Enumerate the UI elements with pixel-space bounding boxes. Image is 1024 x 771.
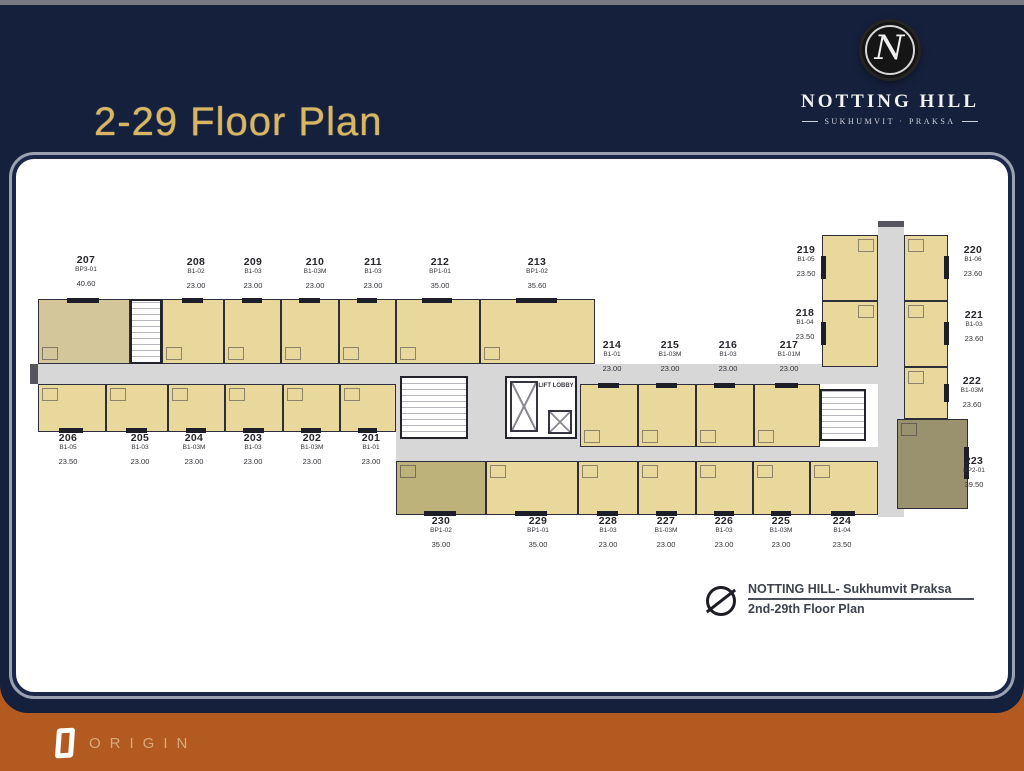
unit-type: B1-03M	[638, 351, 702, 359]
unit-label-215: 215B1-03M23.00	[638, 340, 702, 373]
unit-room-203	[225, 384, 283, 432]
unit-number: 220	[941, 245, 1005, 256]
unit-type: B1-03M	[634, 527, 698, 535]
unit-type: BP2-01	[942, 467, 1006, 475]
unit-label-226: 226B1-0323.00	[692, 516, 756, 549]
unit-number: 227	[634, 516, 698, 527]
unit-area: 40.60	[54, 279, 118, 288]
unit-area: 23.50	[774, 269, 838, 278]
compass-needle	[706, 589, 736, 614]
unit-area: 35.00	[506, 540, 570, 549]
stair-core-left	[130, 299, 162, 364]
tagline-text: SUKHUMVIT · PRAKSA	[824, 117, 955, 126]
unit-number: 224	[810, 516, 874, 527]
corridor-mid	[396, 447, 878, 461]
unit-number: 221	[942, 310, 1006, 321]
corridor-end-cap	[30, 364, 38, 384]
unit-room-216	[696, 384, 754, 447]
unit-number: 217	[757, 340, 821, 351]
unit-number: 214	[580, 340, 644, 351]
unit-number: 212	[408, 257, 472, 268]
unit-area: 23.60	[941, 269, 1005, 278]
unit-label-220: 220B1-0623.60	[941, 245, 1005, 278]
lift-shaft	[510, 381, 538, 432]
tagline-dash-left	[802, 121, 818, 122]
unit-room-201	[340, 384, 396, 432]
unit-label-202: 202B1-03M23.00	[280, 433, 344, 466]
unit-number: 226	[692, 516, 756, 527]
unit-room-206	[38, 384, 106, 432]
unit-label-221: 221B1-0323.60	[942, 310, 1006, 343]
plan-annotation: NOTTING HILL- Sukhumvit Praksa 2nd-29th …	[748, 582, 974, 616]
unit-room-229	[486, 461, 578, 515]
unit-room-227	[638, 461, 696, 515]
unit-label-217: 217B1-01M23.00	[757, 340, 821, 373]
unit-number: 223	[942, 456, 1006, 467]
floor-plan-panel: NOTTING HILL- Sukhumvit Praksa 2nd-29th …	[12, 155, 1012, 696]
unit-type: BP1-02	[409, 527, 473, 535]
unit-area: 23.00	[339, 457, 403, 466]
unit-room-211	[339, 299, 396, 364]
unit-type: B1-06	[941, 256, 1005, 264]
annotation-title: NOTTING HILL- Sukhumvit Praksa	[748, 582, 974, 600]
origin-o-icon	[55, 728, 75, 759]
unit-type: BP3-01	[54, 266, 118, 274]
unit-area: 23.00	[696, 364, 760, 373]
lift-core: LIFT LOBBY	[505, 376, 577, 439]
unit-type: B1-01M	[757, 351, 821, 359]
unit-type: B1-01	[580, 351, 644, 359]
unit-label-213: 213BP1-0235.60	[505, 257, 569, 290]
unit-area: 23.50	[810, 540, 874, 549]
unit-area: 23.00	[638, 364, 702, 373]
unit-area: 23.00	[757, 364, 821, 373]
brand-tagline: SUKHUMVIT · PRAKSA	[796, 117, 984, 126]
unit-label-214: 214B1-0123.00	[580, 340, 644, 373]
unit-type: B1-03M	[280, 444, 344, 452]
unit-type: B1-03	[576, 527, 640, 535]
unit-type: B1-03	[108, 444, 172, 452]
unit-type: B1-03M	[749, 527, 813, 535]
unit-number: 228	[576, 516, 640, 527]
unit-type: B1-03	[942, 321, 1006, 329]
unit-type: B1-03	[221, 444, 285, 452]
unit-area: 23.00	[576, 540, 640, 549]
unit-room-214	[580, 384, 638, 447]
unit-room-212	[396, 299, 480, 364]
unit-room-213	[480, 299, 595, 364]
unit-area: 23.00	[580, 364, 644, 373]
top-border-strip	[0, 0, 1024, 5]
unit-area: 23.00	[164, 281, 228, 290]
unit-number: 206	[36, 433, 100, 444]
unit-number: 218	[773, 308, 837, 319]
unit-room-205	[106, 384, 168, 432]
unit-area: 23.00	[108, 457, 172, 466]
unit-area: 23.50	[36, 457, 100, 466]
unit-room-230	[396, 461, 486, 515]
lift-lobby-label: LIFT LOBBY	[538, 383, 574, 390]
unit-type: BP1-02	[505, 268, 569, 276]
unit-number: 230	[409, 516, 473, 527]
unit-room-228	[578, 461, 638, 515]
unit-area: 23.50	[773, 332, 837, 341]
unit-room-217	[754, 384, 820, 447]
unit-number: 216	[696, 340, 760, 351]
origin-wordmark: ORIGIN	[89, 735, 196, 752]
notting-hill-monogram-icon: N	[862, 22, 918, 78]
unit-label-212: 212BP1-0135.00	[408, 257, 472, 290]
unit-area: 23.00	[692, 540, 756, 549]
unit-area: 35.00	[408, 281, 472, 290]
unit-label-222: 222B1-03M23.60	[940, 376, 1004, 409]
unit-type: B1-03M	[283, 268, 347, 276]
unit-number: 210	[283, 257, 347, 268]
unit-number: 201	[339, 433, 403, 444]
unit-number: 202	[280, 433, 344, 444]
unit-type: BP1-01	[408, 268, 472, 276]
monogram-letter: N	[875, 28, 905, 68]
unit-area: 23.60	[940, 400, 1004, 409]
unit-label-230: 230BP1-0235.00	[409, 516, 473, 549]
unit-room-210	[281, 299, 339, 364]
unit-label-207: 207BP3-0140.60	[54, 255, 118, 288]
unit-number: 215	[638, 340, 702, 351]
unit-label-224: 224B1-0423.50	[810, 516, 874, 549]
unit-area: 23.00	[634, 540, 698, 549]
stair-core-1	[400, 376, 468, 439]
unit-type: B1-03	[696, 351, 760, 359]
unit-type: B1-04	[810, 527, 874, 535]
unit-type: BP1-01	[506, 527, 570, 535]
unit-label-210: 210B1-03M23.00	[283, 257, 347, 290]
unit-type: B1-05	[36, 444, 100, 452]
unit-type: B1-05	[774, 256, 838, 264]
unit-room-202	[283, 384, 340, 432]
unit-area: 23.00	[749, 540, 813, 549]
unit-label-218: 218B1-0423.50	[773, 308, 837, 341]
unit-type: B1-03	[692, 527, 756, 535]
unit-room-225	[753, 461, 810, 515]
footer-bar: ORIGIN	[0, 711, 1024, 771]
unit-label-223: 223BP2-0139.50	[942, 456, 1006, 489]
unit-label-203: 203B1-0323.00	[221, 433, 285, 466]
unit-number: 225	[749, 516, 813, 527]
unit-label-209: 209B1-0323.00	[221, 257, 285, 290]
unit-room-204	[168, 384, 225, 432]
unit-room-224	[810, 461, 878, 515]
unit-type: B1-03	[341, 268, 405, 276]
unit-label-228: 228B1-0323.00	[576, 516, 640, 549]
unit-area: 39.50	[942, 480, 1006, 489]
unit-type: B1-02	[164, 268, 228, 276]
unit-type: B1-01	[339, 444, 403, 452]
unit-room-207	[38, 299, 130, 364]
unit-number: 219	[774, 245, 838, 256]
slide-background: 2-29 Floor Plan N NOTTING HILL SUKHUMVIT…	[0, 0, 1024, 713]
unit-type: B1-03	[221, 268, 285, 276]
unit-area: 23.60	[942, 334, 1006, 343]
unit-label-205: 205B1-0323.00	[108, 433, 172, 466]
unit-label-229: 229BP1-0135.00	[506, 516, 570, 549]
corridor-top-cap	[878, 221, 904, 227]
brand-name: NOTTING HILL	[796, 91, 984, 113]
unit-label-201: 201B1-0123.00	[339, 433, 403, 466]
unit-label-206: 206B1-0523.50	[36, 433, 100, 466]
unit-room-208	[162, 299, 224, 364]
unit-number: 203	[221, 433, 285, 444]
unit-number: 211	[341, 257, 405, 268]
tagline-dash-right	[962, 121, 978, 122]
unit-area: 23.00	[221, 457, 285, 466]
unit-number: 209	[221, 257, 285, 268]
unit-area: 23.00	[280, 457, 344, 466]
unit-label-211: 211B1-0323.00	[341, 257, 405, 290]
unit-area: 35.60	[505, 281, 569, 290]
floor-plan: NOTTING HILL- Sukhumvit Praksa 2nd-29th …	[16, 159, 1008, 692]
unit-label-208: 208B1-0223.00	[164, 257, 228, 290]
lift-shaft	[548, 410, 572, 434]
unit-area: 23.00	[283, 281, 347, 290]
stair-core-2	[820, 389, 866, 441]
brand-block: N NOTTING HILL SUKHUMVIT · PRAKSA	[796, 22, 984, 126]
unit-label-216: 216B1-0323.00	[696, 340, 760, 373]
unit-number: 229	[506, 516, 570, 527]
unit-type: B1-03M	[940, 387, 1004, 395]
unit-room-215	[638, 384, 696, 447]
unit-number: 207	[54, 255, 118, 266]
north-compass-icon	[706, 586, 736, 616]
unit-room-209	[224, 299, 281, 364]
unit-label-219: 219B1-0523.50	[774, 245, 838, 278]
unit-label-227: 227B1-03M23.00	[634, 516, 698, 549]
unit-room-226	[696, 461, 753, 515]
page-title: 2-29 Floor Plan	[94, 100, 382, 145]
unit-area: 35.00	[409, 540, 473, 549]
unit-area: 23.00	[221, 281, 285, 290]
unit-type: B1-04	[773, 319, 837, 327]
origin-logo: ORIGIN	[56, 728, 196, 758]
unit-number: 205	[108, 433, 172, 444]
unit-number: 208	[164, 257, 228, 268]
unit-label-225: 225B1-03M23.00	[749, 516, 813, 549]
annotation-subtitle: 2nd-29th Floor Plan	[748, 602, 974, 616]
unit-number: 222	[940, 376, 1004, 387]
unit-number: 213	[505, 257, 569, 268]
unit-area: 23.00	[341, 281, 405, 290]
